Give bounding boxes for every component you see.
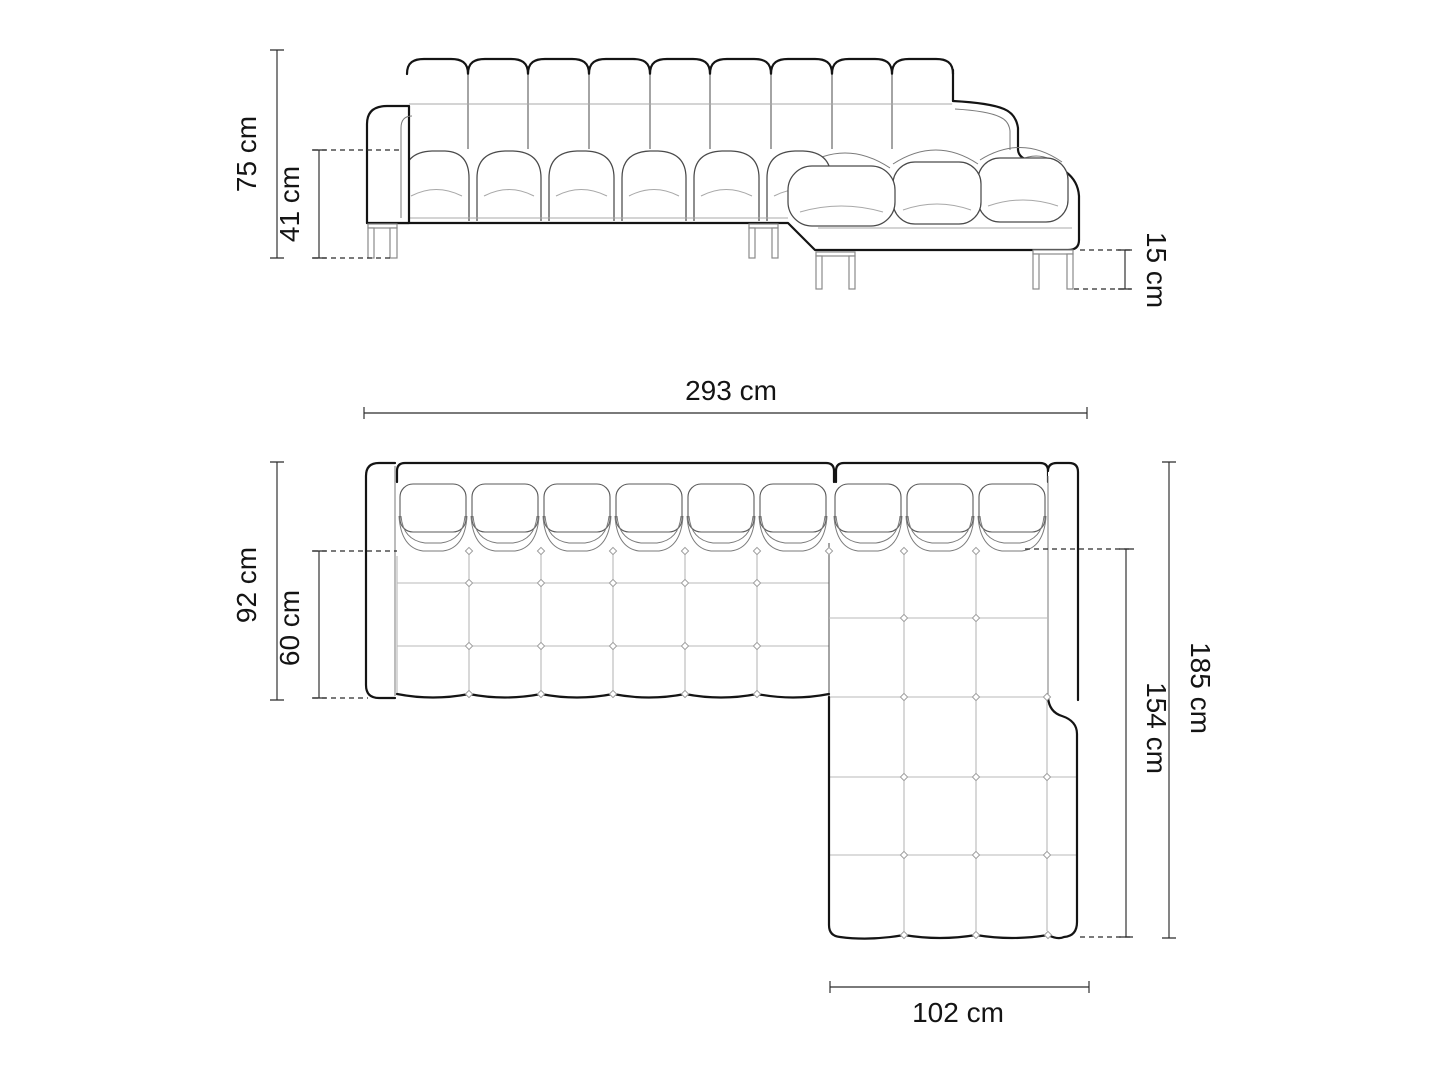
dim-seat-depth: 60 cm — [274, 551, 326, 698]
plan-seat-grid — [397, 543, 1077, 931]
front-chaise-cushions — [788, 158, 1068, 226]
sofa-dimension-diagram: 75 cm 41 cm 15 cm — [0, 0, 1448, 1086]
front-left-arm — [367, 106, 412, 223]
dim-seat-depth-label: 60 cm — [274, 590, 305, 666]
front-view: 75 cm 41 cm 15 cm — [231, 50, 1172, 308]
front-back-cushions — [407, 59, 953, 150]
dim-seat-height: 41 cm — [274, 150, 326, 258]
dim-total-height-label: 75 cm — [231, 116, 262, 192]
dim-chaise-width-label: 102 cm — [912, 997, 1004, 1028]
plan-reference-dashes — [313, 549, 1134, 937]
dim-total-width-label: 293 cm — [685, 375, 777, 406]
dim-total-depth-label: 92 cm — [231, 547, 262, 623]
dim-leg-height: 15 cm — [1118, 232, 1172, 308]
plan-chaise-outline — [829, 697, 1077, 939]
diagram-svg: 75 cm 41 cm 15 cm — [0, 0, 1448, 1086]
plan-back-cushions — [399, 484, 1046, 551]
dim-seat-height-label: 41 cm — [274, 166, 305, 242]
dim-chaise-length-label: 154 cm — [1141, 682, 1172, 774]
front-seat-cushions — [404, 151, 831, 221]
dim-total-length-label: 185 cm — [1185, 642, 1216, 734]
plan-left-arm — [366, 463, 395, 698]
dim-chaise-length: 154 cm — [1119, 549, 1172, 937]
plan-right-arm — [1048, 463, 1078, 700]
dim-chaise-width: 102 cm — [830, 981, 1089, 1028]
plan-view: 293 cm 92 cm 60 cm 185 cm 154 cm 102 cm — [231, 375, 1216, 1028]
plan-tuft-nodes — [465, 547, 1051, 938]
plan-back-rails — [397, 463, 1048, 482]
dim-leg-height-label: 15 cm — [1141, 232, 1172, 308]
dim-total-width: 293 cm — [364, 375, 1087, 419]
